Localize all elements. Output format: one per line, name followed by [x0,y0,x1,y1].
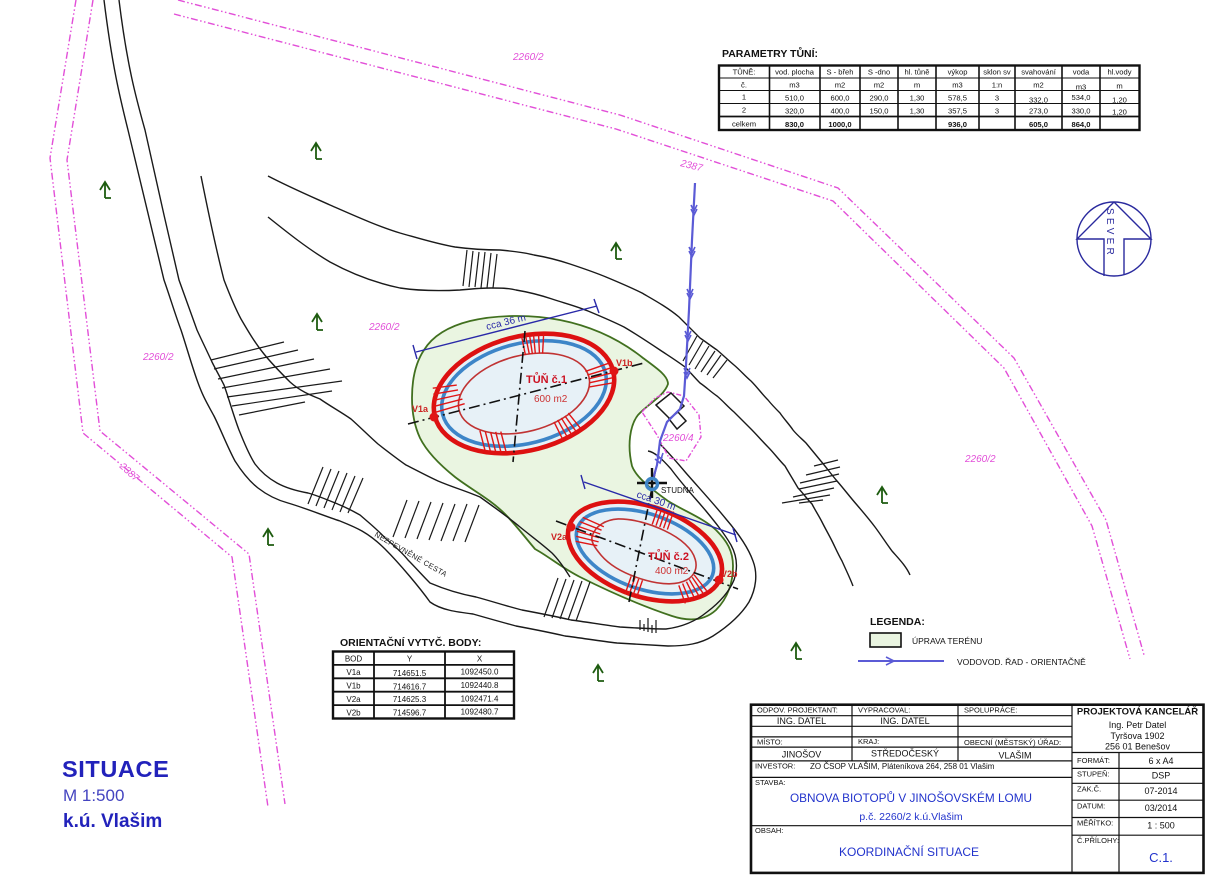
svg-text:Č.PŘÍLOHY:: Č.PŘÍLOHY: [1077,836,1119,845]
svg-text:07-2014: 07-2014 [1144,786,1177,796]
svg-text:ING. DATEL: ING. DATEL [777,716,826,726]
svg-text:JINOŠOV: JINOŠOV [782,749,822,759]
svg-text:600 m2: 600 m2 [534,394,568,405]
svg-text:V2b: V2b [346,708,361,717]
svg-text:KRAJ:: KRAJ: [858,737,879,746]
svg-text:2260/2: 2260/2 [964,454,996,465]
svg-text:2260/4: 2260/4 [662,433,694,444]
svg-text:STUPEŇ:: STUPEŇ: [1077,770,1110,779]
svg-text:605,0: 605,0 [1029,120,1048,129]
svg-text:výkop: výkop [948,68,968,77]
svg-text:330,0: 330,0 [1071,107,1090,116]
svg-text:Ing. Petr Datel: Ing. Petr Datel [1109,720,1167,730]
svg-text:510,0: 510,0 [785,94,804,103]
svg-text:SEVER: SEVER [1104,208,1115,258]
svg-text:V2b: V2b [721,569,738,579]
svg-text:VYPRACOVAL:: VYPRACOVAL: [858,706,910,715]
svg-text:400 m2: 400 m2 [655,566,689,577]
svg-text:m: m [1116,82,1122,91]
svg-text:MÍSTO:: MÍSTO: [757,738,783,747]
svg-text:m2: m2 [1033,81,1044,90]
svg-text:ODPOV. PROJEKTANT:: ODPOV. PROJEKTANT: [757,706,838,715]
svg-text:TŮŇ č.1: TŮŇ č.1 [526,372,567,386]
svg-text:332,0: 332,0 [1029,96,1048,105]
svg-text:1000,0: 1000,0 [828,120,851,129]
svg-text:STAVBA:: STAVBA: [755,778,786,787]
svg-text:p.č. 2260/2 k.ú.Vlašim: p.č. 2260/2 k.ú.Vlašim [859,811,963,823]
svg-text:hl.vody: hl.vody [1107,68,1131,77]
svg-text:m: m [914,81,920,90]
svg-text:714596.7: 714596.7 [393,708,427,717]
svg-text:2260/2: 2260/2 [512,52,544,63]
svg-text:1: 1 [742,93,746,102]
svg-text:KOORDINAČNÍ SITUACE: KOORDINAČNÍ SITUACE [839,844,979,859]
svg-text:m2: m2 [874,81,885,90]
svg-text:936,0: 936,0 [948,120,967,129]
svg-text:273,0: 273,0 [1029,107,1048,116]
svg-text:PROJEKTOVÁ KANCELÁŘ: PROJEKTOVÁ KANCELÁŘ [1077,706,1198,718]
svg-text:STŘEDOČESKÝ: STŘEDOČESKÝ [871,749,939,759]
svg-text:714616.7: 714616.7 [393,682,427,691]
svg-text:STUDNA: STUDNA [661,486,695,495]
svg-text:290,0: 290,0 [869,94,888,103]
svg-text:svahování: svahování [1021,68,1057,77]
svg-text:2260/2: 2260/2 [368,322,400,333]
svg-text:BOD: BOD [345,655,363,664]
svg-text:3: 3 [995,94,999,103]
svg-text:MĚŘÍTKO:: MĚŘÍTKO: [1077,819,1113,828]
svg-text:hl. tůně: hl. tůně [905,68,930,77]
svg-text:M 1:500: M 1:500 [63,786,124,805]
svg-text:OBECNÍ (MĚSTSKÝ) ÚŘAD:: OBECNÍ (MĚSTSKÝ) ÚŘAD: [964,738,1061,747]
svg-text:PARAMETRY TŮNÍ:: PARAMETRY TŮNÍ: [722,46,818,60]
svg-text:m3: m3 [1076,83,1087,92]
svg-text:ZAK.Č.: ZAK.Č. [1077,785,1101,794]
svg-text:Tyršova 1902: Tyršova 1902 [1110,731,1164,741]
svg-text:150,0: 150,0 [869,107,888,116]
svg-text:6 x A4: 6 x A4 [1148,756,1173,766]
svg-text:1092480.7: 1092480.7 [461,708,499,717]
svg-text:m3: m3 [952,81,963,90]
svg-text:voda: voda [1073,68,1090,77]
svg-text:V2a: V2a [551,532,568,542]
svg-text:VODOVOD. ŘAD - ORIENTAČNĚ: VODOVOD. ŘAD - ORIENTAČNĚ [957,657,1086,667]
svg-text:1,20: 1,20 [1112,96,1127,105]
svg-text:DSP: DSP [1152,770,1171,780]
svg-text:V1a: V1a [346,668,361,677]
svg-text:SITUACE: SITUACE [62,756,169,782]
svg-text:m3: m3 [789,81,800,90]
svg-text:2: 2 [742,106,746,115]
svg-text:714651.5: 714651.5 [393,669,427,678]
svg-text:k.ú. Vlašim: k.ú. Vlašim [63,811,162,832]
svg-text:V2a: V2a [346,695,361,704]
svg-text:1,30: 1,30 [910,107,925,116]
svg-text:864,0: 864,0 [1071,120,1090,129]
svg-text:600,0: 600,0 [830,94,849,103]
svg-text:534,0: 534,0 [1071,93,1090,102]
svg-text:3: 3 [995,107,999,116]
svg-text:320,0: 320,0 [785,107,804,116]
svg-text:VLAŠIM: VLAŠIM [998,750,1031,760]
svg-text:1 : 500: 1 : 500 [1147,821,1175,831]
svg-text:1,20: 1,20 [1112,108,1127,117]
svg-text:714625.3: 714625.3 [393,695,427,704]
svg-text:1092450.0: 1092450.0 [461,668,499,677]
svg-text:256 01 Benešov: 256 01 Benešov [1105,742,1171,752]
svg-text:OBNOVA BIOTOPŮ V JINOŠOVSKÉM L: OBNOVA BIOTOPŮ V JINOŠOVSKÉM LOMU [790,791,1032,805]
svg-text:S - břeh: S - břeh [826,68,853,77]
svg-text:LEGENDA:: LEGENDA: [870,616,925,628]
svg-text:578,5: 578,5 [948,94,967,103]
svg-text:ORIENTAČNÍ VYTYČ. BODY:: ORIENTAČNÍ VYTYČ. BODY: [340,636,481,649]
svg-text:vod. plocha: vod. plocha [775,68,815,77]
svg-text:FORMÁT:: FORMÁT: [1077,756,1110,765]
svg-text:V1a: V1a [412,404,429,414]
svg-text:C.1.: C.1. [1149,850,1173,865]
svg-text:400,0: 400,0 [830,107,849,116]
svg-text:TŮŇ č.2: TŮŇ č.2 [648,549,689,563]
svg-text:ING. DATEL: ING. DATEL [880,716,929,726]
svg-text:S -dno: S -dno [868,68,890,77]
svg-text:830,0: 830,0 [785,120,804,129]
svg-text:DATUM:: DATUM: [1077,802,1105,811]
svg-text:ÚPRAVA TERÉNU: ÚPRAVA TERÉNU [912,636,982,646]
svg-text:V1b: V1b [616,358,633,368]
svg-text:m2: m2 [835,81,846,90]
svg-text:SPOLUPRÁCE:: SPOLUPRÁCE: [964,706,1017,715]
svg-text:OBSAH:: OBSAH: [755,826,783,835]
svg-text:INVESTOR:: INVESTOR: [755,762,795,771]
svg-text:ZO ČSOP VLAŠIM, Pláteníkova 2: ZO ČSOP VLAŠIM, Pláteníkova 264, 258 01 … [810,762,995,771]
svg-text:X: X [477,655,483,664]
svg-text:1092471.4: 1092471.4 [461,694,499,703]
svg-text:celkem: celkem [732,120,756,129]
svg-text:1,30: 1,30 [910,94,925,103]
svg-text:Y: Y [407,655,413,664]
svg-text:1092440.8: 1092440.8 [461,681,499,690]
svg-text:TŮNĚ:: TŮNĚ: [733,68,756,77]
svg-text:357,5: 357,5 [948,107,967,116]
svg-text:03/2014: 03/2014 [1145,803,1178,813]
svg-text:č.: č. [741,81,747,90]
svg-text:V1b: V1b [346,682,361,691]
svg-text:1:n: 1:n [992,81,1003,90]
svg-text:2260/2: 2260/2 [142,352,174,363]
svg-text:sklon sv: sklon sv [983,68,1011,77]
